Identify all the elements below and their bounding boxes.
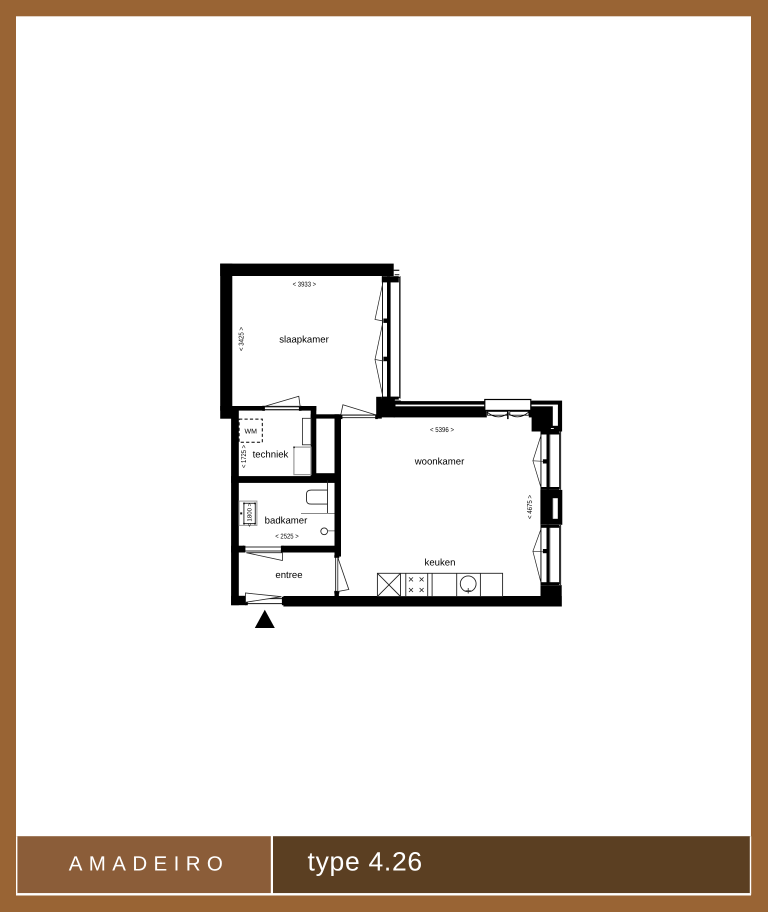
svg-text:slaapkamer: slaapkamer [279, 335, 329, 346]
svg-text:< 3933 >: < 3933 > [293, 281, 317, 288]
svg-text:entree: entree [275, 570, 302, 581]
svg-text:< 1725 >: < 1725 > [241, 445, 248, 468]
svg-text:< 5396 >: < 5396 > [430, 427, 454, 434]
svg-text:keuken: keuken [425, 557, 456, 568]
svg-text:AMADEIRO: AMADEIRO [69, 852, 230, 875]
svg-text:< 4675 >: < 4675 > [527, 495, 534, 519]
svg-text:woonkamer: woonkamer [414, 457, 465, 468]
svg-text:type 4.26: type 4.26 [308, 847, 423, 877]
svg-text:< 2525 >: < 2525 > [275, 534, 299, 541]
svg-text:WM: WM [244, 429, 257, 436]
svg-text:< 1800 >: < 1800 > [247, 502, 254, 526]
svg-text:< 3425 >: < 3425 > [238, 327, 245, 351]
svg-text:techniek: techniek [253, 449, 289, 460]
svg-text:badkamer: badkamer [265, 515, 308, 526]
